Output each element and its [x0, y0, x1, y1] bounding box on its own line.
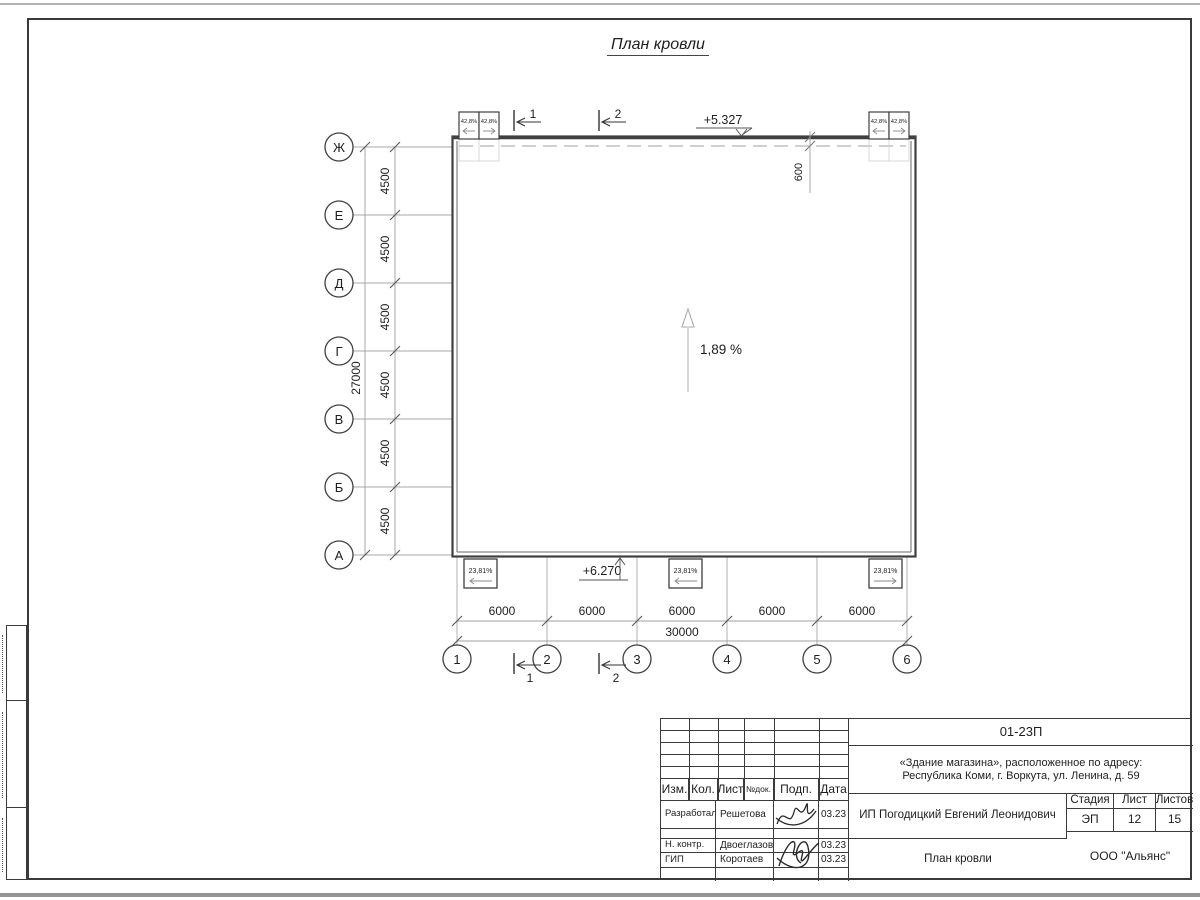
role-razrabotal: Разработал — [661, 801, 716, 829]
empty-row — [661, 829, 716, 839]
object-address: «Здание магазина», расположенное по адре… — [849, 746, 1193, 794]
sheet-top-edge — [0, 3, 1200, 5]
empty-row — [774, 868, 819, 881]
sign-cell — [774, 839, 819, 853]
left-stamp-divider — [6, 700, 27, 701]
header-ndok: №док. — [744, 779, 774, 801]
client-name: ИП Погодицкий Евгений Леонидович — [849, 794, 1067, 839]
sheet-value: 12 — [1114, 809, 1156, 832]
left-stamp-microtext — [2, 635, 3, 693]
left-stamp-microtext — [2, 712, 3, 798]
empty-row — [774, 829, 819, 839]
sheets-value: 15 — [1156, 809, 1193, 832]
stage-value: ЭП — [1067, 809, 1114, 832]
object-line2: Республика Коми, г. Воркута, ул. Ленина,… — [902, 770, 1139, 783]
date-gip: 03.23 — [819, 853, 849, 868]
empty-row — [716, 868, 774, 881]
sheet-header: Лист — [1114, 794, 1156, 809]
left-stamp-microtext — [2, 818, 3, 872]
date-razrabotal: 03.23 — [819, 801, 849, 829]
sign-cell — [774, 801, 819, 829]
header-kol: Кол. — [689, 779, 718, 801]
name-gip: Коротаев — [716, 853, 774, 868]
empty-row — [716, 829, 774, 839]
header-data: Дата — [819, 779, 849, 801]
sheet-bottom-bar — [0, 893, 1200, 897]
empty-row — [661, 868, 716, 881]
doc-number: 01-23П — [849, 719, 1193, 746]
role-gip: ГИП — [661, 853, 716, 868]
sign-cell — [774, 853, 819, 868]
left-stamp-divider — [6, 807, 27, 808]
title-block: Изм. Кол. Лист №док. Подп. Дата Разработ… — [660, 718, 1192, 880]
object-line1: «Здание магазина», расположенное по адре… — [900, 757, 1143, 770]
date-nkontr: 03.23 — [819, 839, 849, 853]
sheets-header: Листов — [1156, 794, 1193, 809]
name-razrabotal: Решетова — [716, 801, 774, 829]
left-stamp-column — [6, 625, 27, 880]
name-nkontr: Двоеглазов — [716, 839, 774, 853]
company-name: ООО "Альянс" — [1067, 832, 1193, 881]
header-list: Лист — [718, 779, 744, 801]
page-title: План кровли — [607, 36, 709, 56]
drawing-name: План кровли — [849, 839, 1067, 881]
role-nkontr: Н. контр. — [661, 839, 716, 853]
empty-row — [819, 868, 849, 881]
header-podp: Подп. — [774, 779, 819, 801]
stage-header: Стадия — [1067, 794, 1114, 809]
header-izm: Изм. — [661, 779, 689, 801]
empty-row — [819, 829, 849, 839]
